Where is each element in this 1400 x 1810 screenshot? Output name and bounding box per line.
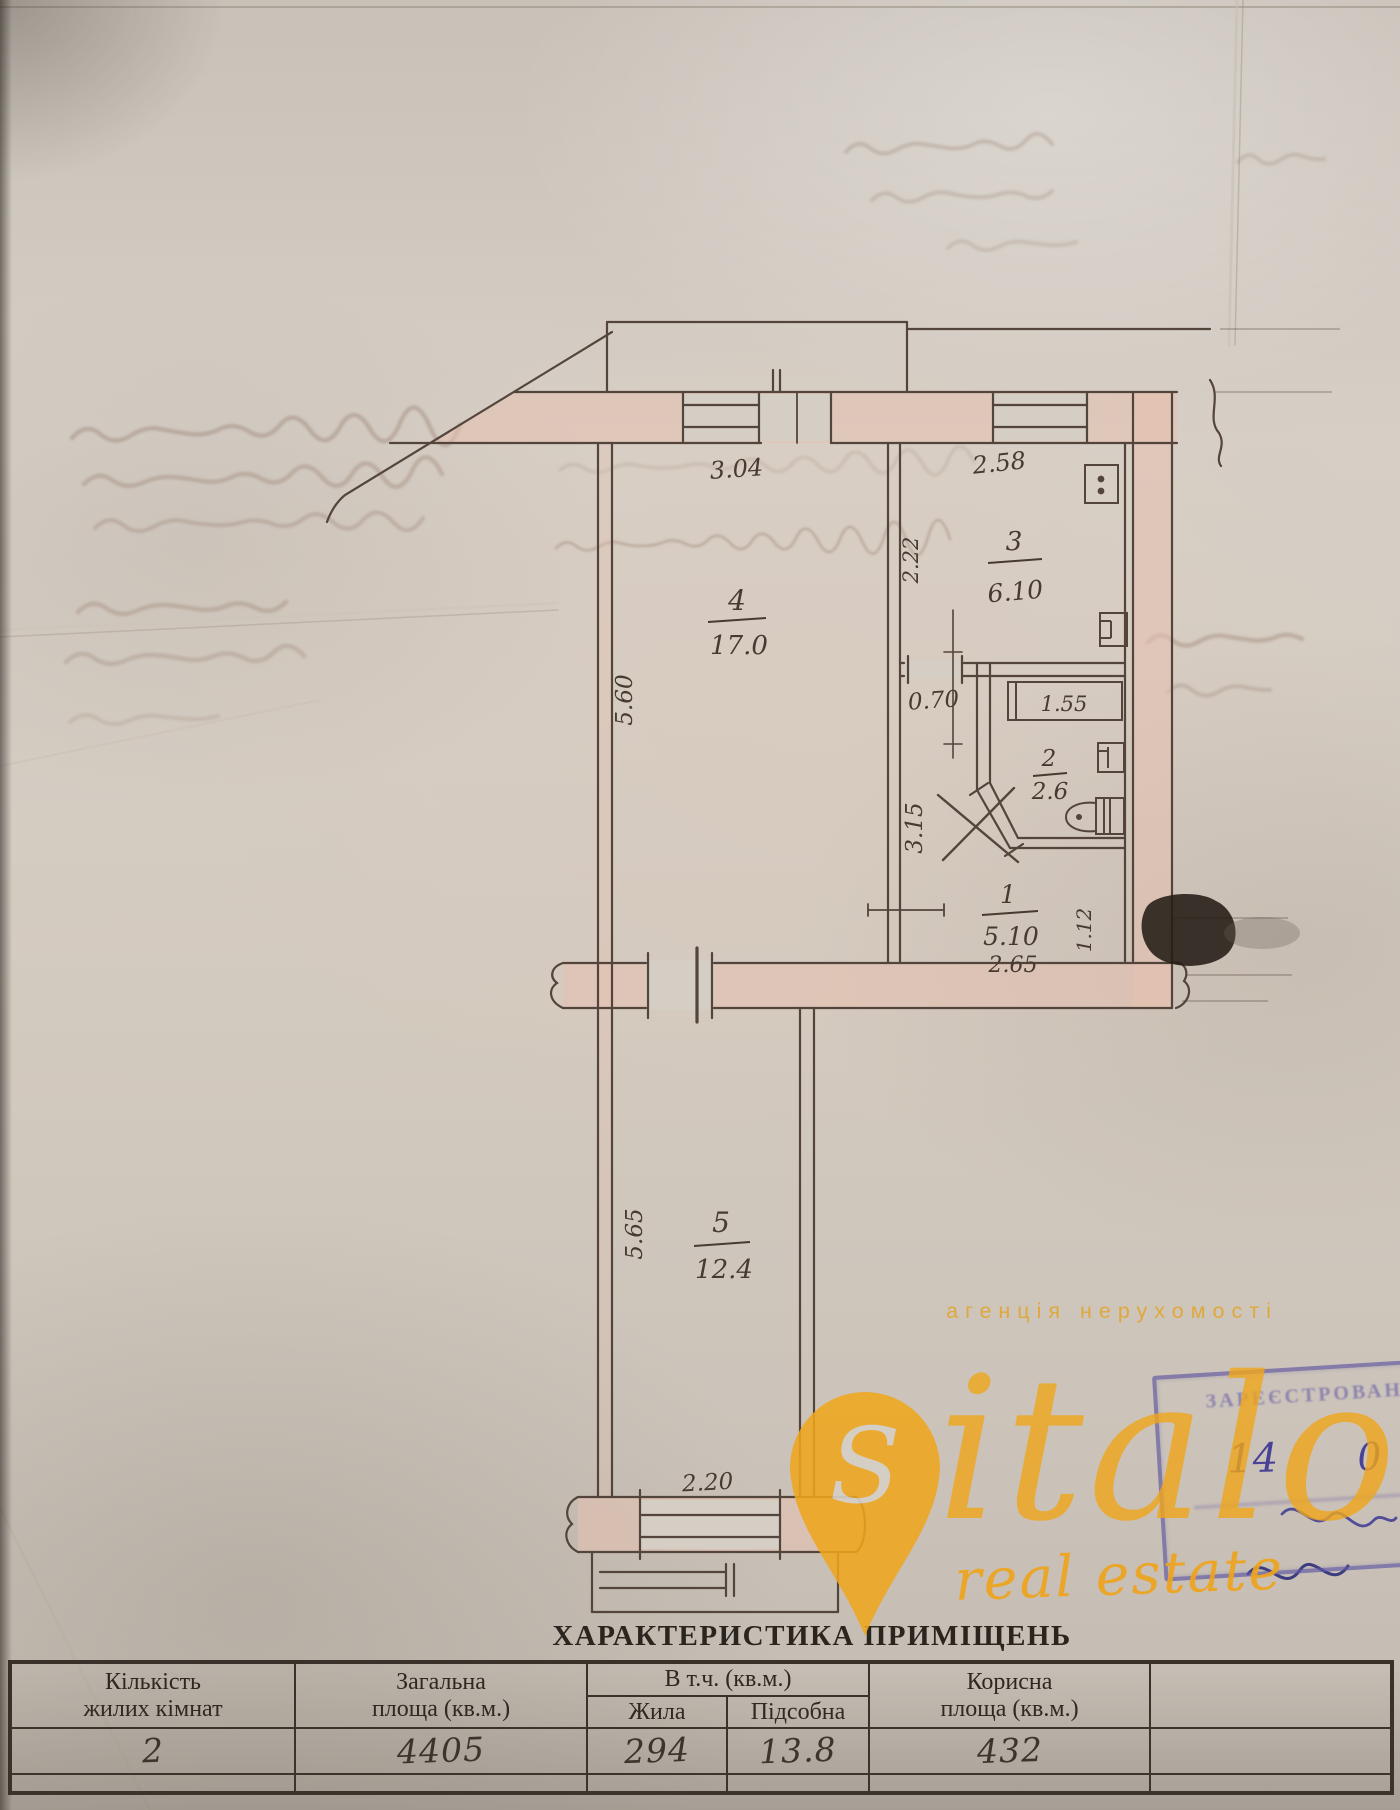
sink-icon: [1098, 743, 1124, 772]
room-3-number: 3: [1006, 527, 1023, 557]
room-5-number: 5: [712, 1206, 730, 1239]
registration-stamp: ЗАРЕЄСТРОВАНО 14 0: [1152, 1356, 1400, 1581]
dim-room5-width: 2.20: [680, 1469, 734, 1498]
dim-kitchen-side: 2.22: [899, 537, 923, 585]
dim-top-room3: 2.58: [970, 446, 1027, 480]
photo-bottom-vignette: [0, 1670, 1400, 1810]
ink-blot: [1142, 894, 1300, 966]
vent-icon: [1100, 613, 1127, 646]
dim-room5-side: 5.65: [622, 1208, 648, 1259]
wall-fills: [430, 392, 1177, 1552]
room-4-number: 4: [727, 584, 746, 617]
photo-corner-shadow: [0, 0, 320, 260]
stamp-handwritten-extra: 0: [1356, 1434, 1383, 1479]
room-2-area: 2.6: [1031, 779, 1069, 805]
room-1-number: 1: [1000, 880, 1016, 909]
stamp-handwritten-day: 14: [1227, 1435, 1279, 1482]
dim-hall-width: 2.65: [988, 953, 1038, 978]
scanned-floorplan-page: 3.04 2.58 2.22 4 17.0 5.60 3 6.10 0.70 1…: [0, 0, 1400, 1810]
stamp-rule: [1194, 1491, 1400, 1510]
room-4-area: 17.0: [710, 631, 768, 661]
dim-corridor: 0.70: [907, 686, 960, 716]
dim-hall-side: 3.15: [902, 802, 928, 853]
stove-icon: [1085, 465, 1118, 503]
room-3-area: 6.10: [986, 575, 1044, 609]
room-2-number: 2: [1041, 746, 1057, 772]
room-5-area: 12.4: [695, 1255, 753, 1285]
stamp-text: ЗАРЕЄСТРОВАНО: [1157, 1375, 1400, 1417]
photo-left-edge-shadow: [0, 0, 12, 1810]
dim-room4-side: 5.60: [612, 674, 638, 725]
dim-hall-right: 1.12: [1072, 908, 1096, 953]
dim-top-room4: 3.04: [709, 453, 764, 485]
table-title: ХАРАКТЕРИСТИКА ПРИМІЩЕНЬ: [552, 1620, 1071, 1653]
room-1-area: 5.10: [983, 922, 1039, 951]
dim-bathtub: 1.55: [1041, 692, 1088, 716]
